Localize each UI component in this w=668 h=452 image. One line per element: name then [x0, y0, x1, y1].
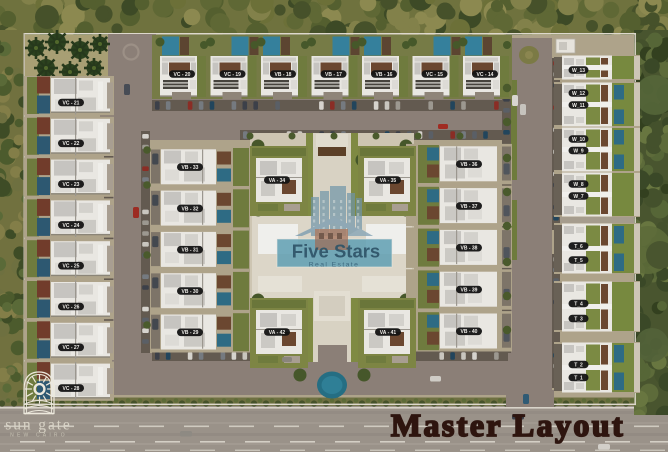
- svg-text:VB - 16: VB - 16: [376, 72, 393, 78]
- svg-text:NEW CAIRO: NEW CAIRO: [10, 433, 68, 439]
- svg-text:VC - 22: VC - 22: [63, 141, 80, 147]
- svg-text:VB - 36: VB - 36: [461, 162, 478, 168]
- svg-text:T_4: T_4: [574, 301, 583, 307]
- svg-text:VC - 20: VC - 20: [174, 72, 191, 78]
- svg-text:T_1: T_1: [574, 375, 583, 381]
- svg-text:VC - 26: VC - 26: [63, 304, 80, 310]
- svg-text:T_2: T_2: [574, 362, 583, 368]
- svg-text:VC - 21: VC - 21: [63, 100, 80, 106]
- svg-text:VB - 39: VB - 39: [461, 287, 478, 293]
- svg-text:W_13: W_13: [572, 68, 585, 74]
- svg-text:VC - 27: VC - 27: [63, 345, 80, 351]
- svg-text:VB - 17: VB - 17: [325, 72, 342, 78]
- svg-text:T_6: T_6: [574, 244, 583, 250]
- svg-text:VC - 28: VC - 28: [63, 386, 80, 392]
- svg-text:VB - 33: VB - 33: [182, 165, 199, 171]
- svg-text:VC - 23: VC - 23: [63, 182, 80, 188]
- svg-text:VC - 14: VC - 14: [477, 72, 494, 78]
- svg-text:Real Estate: Real Estate: [309, 262, 360, 269]
- svg-text:VB - 29: VB - 29: [182, 330, 199, 336]
- svg-text:VA - 34: VA - 34: [269, 178, 286, 184]
- svg-text:VB - 31: VB - 31: [182, 248, 199, 254]
- svg-text:W_8: W_8: [573, 182, 584, 188]
- svg-text:W_11: W_11: [572, 103, 585, 109]
- svg-text:VC - 24: VC - 24: [63, 223, 80, 229]
- svg-text:VB - 38: VB - 38: [461, 246, 478, 252]
- svg-text:VC - 15: VC - 15: [426, 72, 443, 78]
- svg-text:VB - 30: VB - 30: [182, 289, 199, 295]
- svg-text:sun gate: sun gate: [5, 417, 71, 434]
- svg-text:VB - 40: VB - 40: [461, 329, 478, 335]
- svg-text:VA - 42: VA - 42: [269, 330, 286, 336]
- svg-text:VB - 32: VB - 32: [182, 206, 199, 212]
- svg-text:VC - 25: VC - 25: [63, 264, 80, 270]
- svg-text:W_12: W_12: [572, 91, 585, 97]
- svg-text:Master Layout: Master Layout: [391, 407, 625, 443]
- svg-text:VA - 35: VA - 35: [380, 178, 397, 184]
- svg-text:VB - 18: VB - 18: [275, 72, 292, 78]
- svg-text:VB - 37: VB - 37: [461, 204, 478, 210]
- svg-text:W_10: W_10: [572, 137, 585, 143]
- svg-text:W_9: W_9: [573, 148, 584, 154]
- svg-text:T_3: T_3: [574, 316, 583, 322]
- svg-text:W_7: W_7: [573, 194, 584, 200]
- svg-text:T_5: T_5: [574, 258, 583, 264]
- svg-text:VA - 41: VA - 41: [380, 330, 397, 336]
- svg-text:VC - 19: VC - 19: [224, 72, 241, 78]
- svg-text:Five Stars: Five Stars: [292, 241, 380, 262]
